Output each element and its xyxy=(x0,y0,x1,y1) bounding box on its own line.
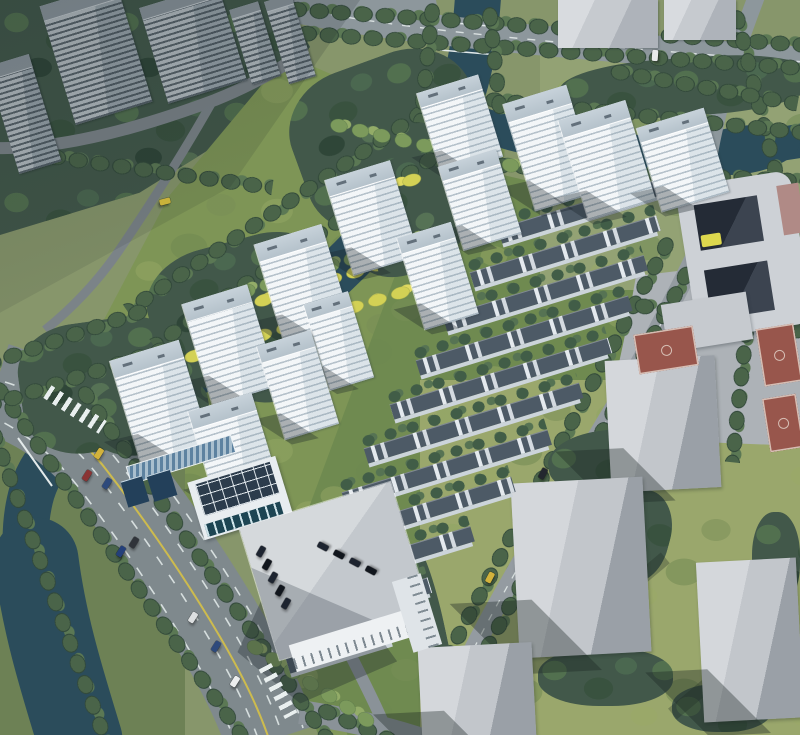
car-14 xyxy=(262,558,273,571)
car-4 xyxy=(116,545,127,558)
vehicles-layer xyxy=(0,0,800,735)
car-15 xyxy=(268,571,279,584)
car-7 xyxy=(211,640,222,653)
car-11 xyxy=(538,467,548,480)
car-2 xyxy=(82,469,93,482)
car-16 xyxy=(275,584,286,597)
car-19 xyxy=(333,549,346,559)
car-6 xyxy=(188,611,199,624)
car-5 xyxy=(129,536,140,549)
car-21 xyxy=(365,565,378,575)
car-18 xyxy=(317,541,330,551)
car-17 xyxy=(281,597,292,610)
car-13 xyxy=(256,545,267,558)
car-3 xyxy=(102,477,113,490)
car-9 xyxy=(159,197,171,206)
car-8 xyxy=(230,675,241,688)
car-1 xyxy=(94,447,105,460)
aerial-rendering xyxy=(0,0,800,735)
car-10 xyxy=(485,571,495,584)
car-20 xyxy=(349,557,362,567)
car-12 xyxy=(652,50,659,61)
